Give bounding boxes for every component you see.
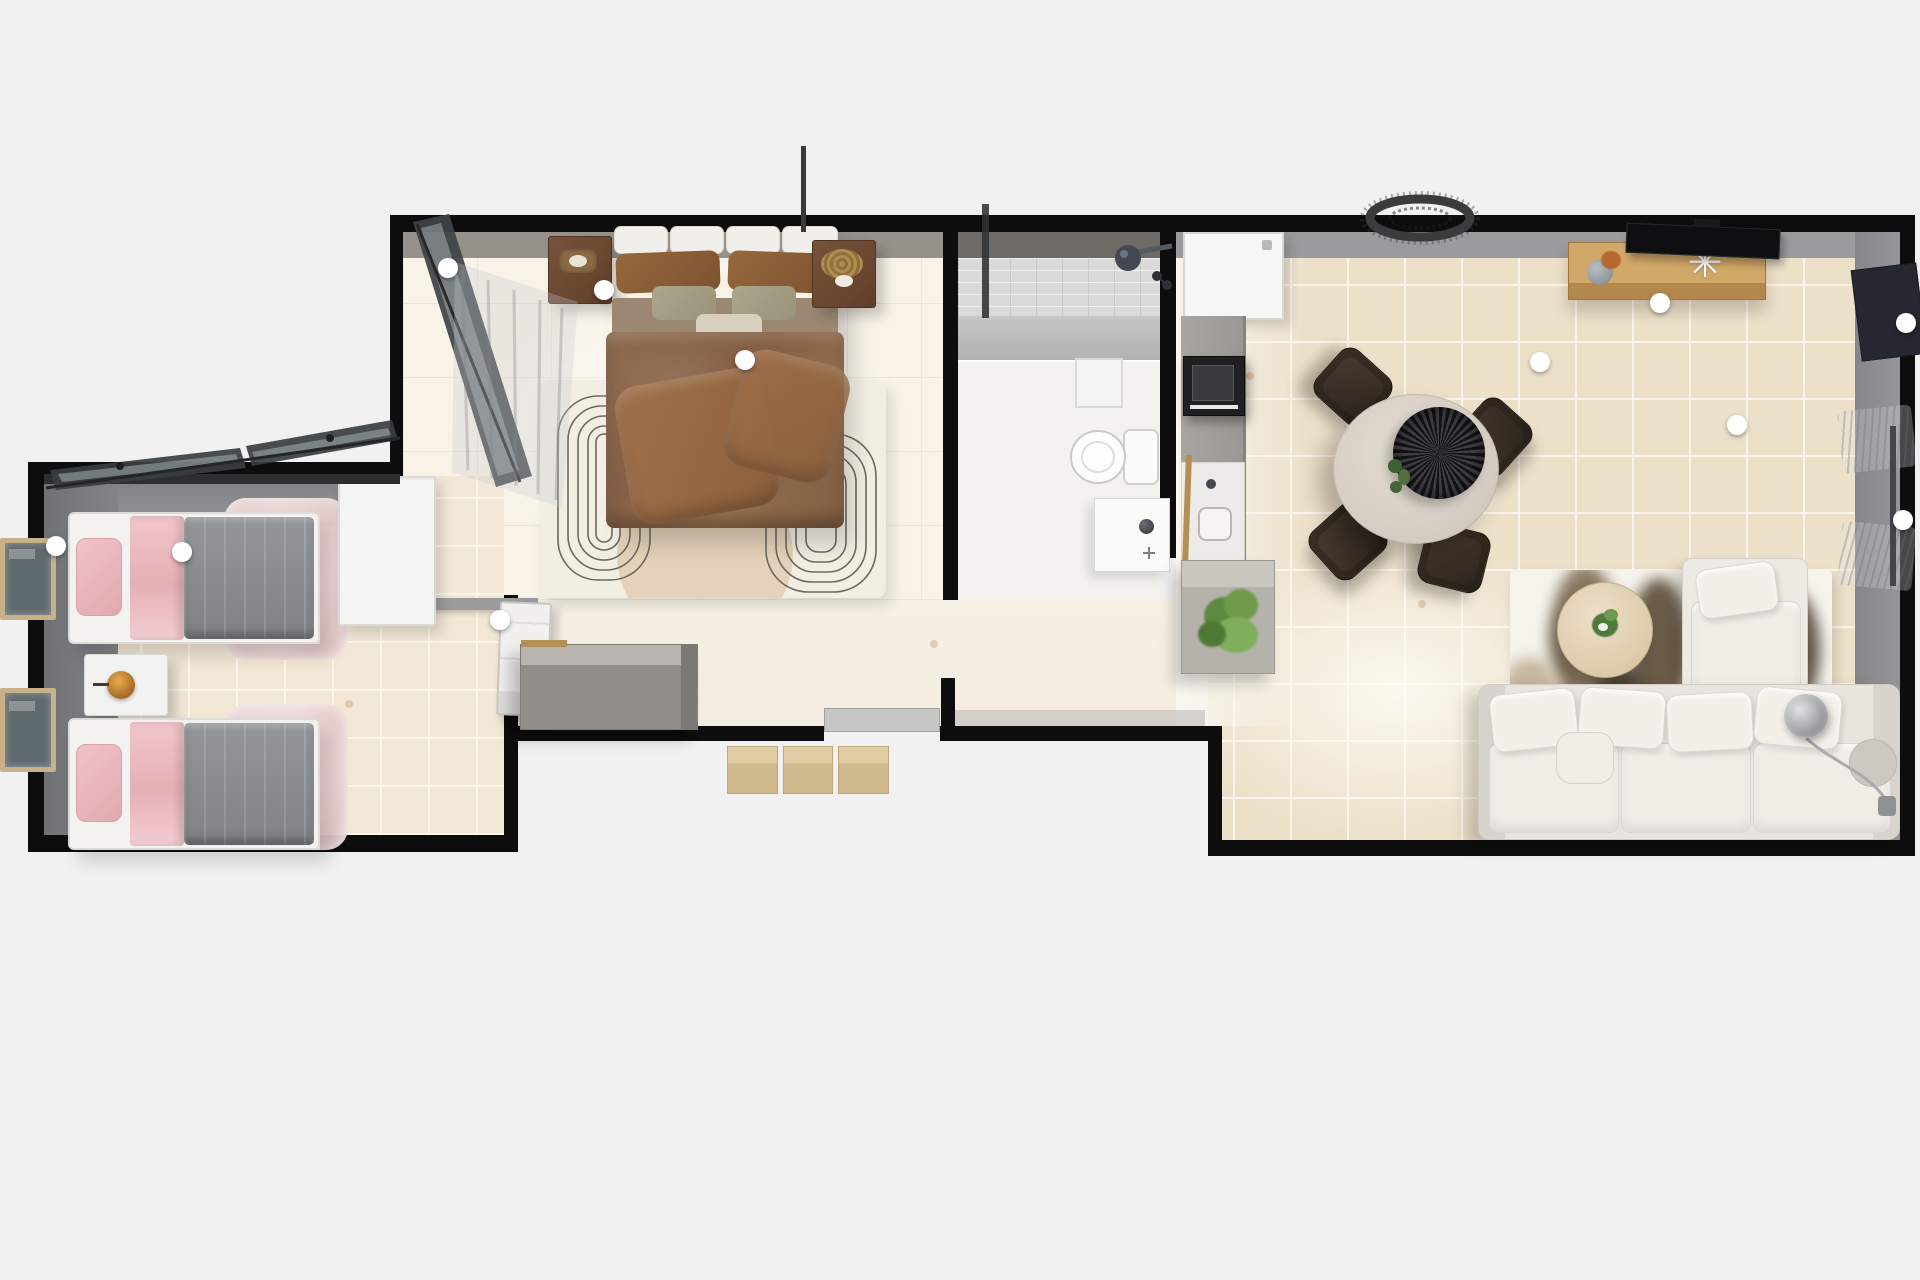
light-marker[interactable] — [1530, 352, 1550, 372]
window-reflection — [9, 549, 35, 559]
master-nightstand-right[interactable] — [812, 240, 876, 308]
wall-annex-top — [28, 462, 403, 476]
table-lamp — [107, 671, 135, 699]
sheer-curtain[interactable] — [1837, 404, 1917, 473]
dresser-trim — [521, 640, 567, 647]
tap-handles — [1143, 547, 1155, 559]
light-marker[interactable] — [438, 258, 458, 278]
pillow — [76, 744, 122, 822]
pillow — [726, 226, 780, 254]
oven-handle — [1190, 405, 1238, 409]
sofa-pillow — [1666, 691, 1755, 753]
vase-flowers — [1601, 251, 1621, 269]
fridge-handle — [1262, 240, 1272, 250]
pillow — [614, 226, 668, 254]
entry-threshold — [955, 710, 1205, 726]
table-plant — [1604, 609, 1618, 621]
kitchen-island[interactable] — [1181, 560, 1275, 674]
tv-bracket — [1694, 219, 1720, 228]
dining-table[interactable] — [1333, 394, 1499, 544]
wall-step — [1208, 726, 1222, 848]
light-marker[interactable] — [490, 610, 510, 630]
plant-leaves — [1198, 621, 1226, 647]
window-reflection — [9, 701, 35, 711]
duvet — [184, 517, 314, 639]
wall-master-left — [390, 215, 403, 476]
floor-speck — [1090, 452, 1098, 460]
curtain-rod — [1890, 426, 1896, 586]
light-marker[interactable] — [735, 350, 755, 370]
dark-wall-panel[interactable] — [1851, 262, 1920, 361]
step — [783, 746, 834, 794]
shower-tray — [958, 316, 1160, 362]
round-cushion — [1849, 739, 1897, 787]
twin-nightstand[interactable] — [84, 654, 168, 716]
oven[interactable] — [1183, 356, 1245, 416]
wall-bottom-living — [1208, 840, 1915, 856]
sink-faucet — [1206, 479, 1216, 489]
bowl — [835, 275, 853, 287]
coffee-table[interactable] — [1557, 582, 1653, 678]
faucet — [1139, 519, 1154, 534]
twin-bed-1[interactable] — [68, 512, 320, 644]
step — [727, 746, 778, 794]
step — [838, 746, 889, 794]
vase[interactable] — [1587, 251, 1621, 285]
left-window-2[interactable] — [0, 688, 56, 772]
light-marker[interactable] — [46, 536, 66, 556]
sofa[interactable] — [1478, 684, 1900, 840]
wall-stub — [941, 678, 955, 733]
plant-leaves — [1390, 481, 1402, 493]
wall-face — [958, 232, 1160, 258]
fridge[interactable] — [1183, 232, 1284, 320]
master-bed[interactable] — [612, 226, 838, 528]
pillow — [76, 538, 122, 616]
sheer-curtain[interactable] — [1837, 521, 1916, 591]
light-marker[interactable] — [594, 280, 614, 300]
kitchen-sink-counter[interactable] — [1181, 462, 1245, 564]
footstool[interactable] — [1556, 732, 1614, 784]
duvet — [184, 723, 314, 845]
background-patch — [1176, 741, 1208, 856]
hall-dresser[interactable] — [520, 644, 698, 730]
vanity-basin[interactable] — [1094, 498, 1170, 572]
tray-dish — [569, 255, 587, 267]
light-marker[interactable] — [1893, 510, 1913, 530]
table-greenery — [1386, 457, 1416, 501]
light-marker[interactable] — [1727, 415, 1747, 435]
entry-door[interactable] — [824, 708, 940, 732]
light-marker[interactable] — [172, 542, 192, 562]
twin-wardrobe[interactable] — [338, 476, 436, 626]
sink-basin — [1198, 507, 1232, 541]
wall-annex-left — [28, 462, 44, 852]
dresser-side — [681, 645, 697, 729]
light-marker[interactable] — [1896, 313, 1916, 333]
floor-plan-canvas: ✳ — [0, 0, 1920, 1280]
oven-cavity — [1192, 365, 1234, 401]
entry-steps[interactable] — [727, 746, 889, 792]
lamp-stem — [93, 683, 109, 686]
floor-speck — [1418, 600, 1426, 608]
wall-bottom-hall-right — [940, 726, 1208, 741]
counter-plant[interactable] — [1196, 587, 1266, 661]
bathroom-cabinet[interactable] — [1075, 358, 1123, 408]
chaise-lounge[interactable] — [1682, 558, 1808, 704]
floor-lamp[interactable] — [1784, 694, 1828, 738]
pillow — [670, 226, 724, 254]
floor-speck — [1246, 372, 1254, 380]
light-marker[interactable] — [1650, 293, 1670, 313]
shower[interactable] — [958, 258, 1160, 316]
plant-leaves — [1224, 589, 1258, 621]
blanket — [130, 722, 184, 846]
towel-rail — [1182, 455, 1192, 565]
vent-pipe — [801, 146, 806, 232]
table-plant-flowers — [1598, 623, 1608, 631]
floor-speck — [930, 640, 938, 648]
wall-bathroom-left — [943, 232, 958, 600]
floor-speck — [345, 700, 353, 708]
seat-cushion — [1621, 743, 1751, 833]
blanket — [130, 516, 184, 640]
twin-bed-2[interactable] — [68, 718, 320, 850]
